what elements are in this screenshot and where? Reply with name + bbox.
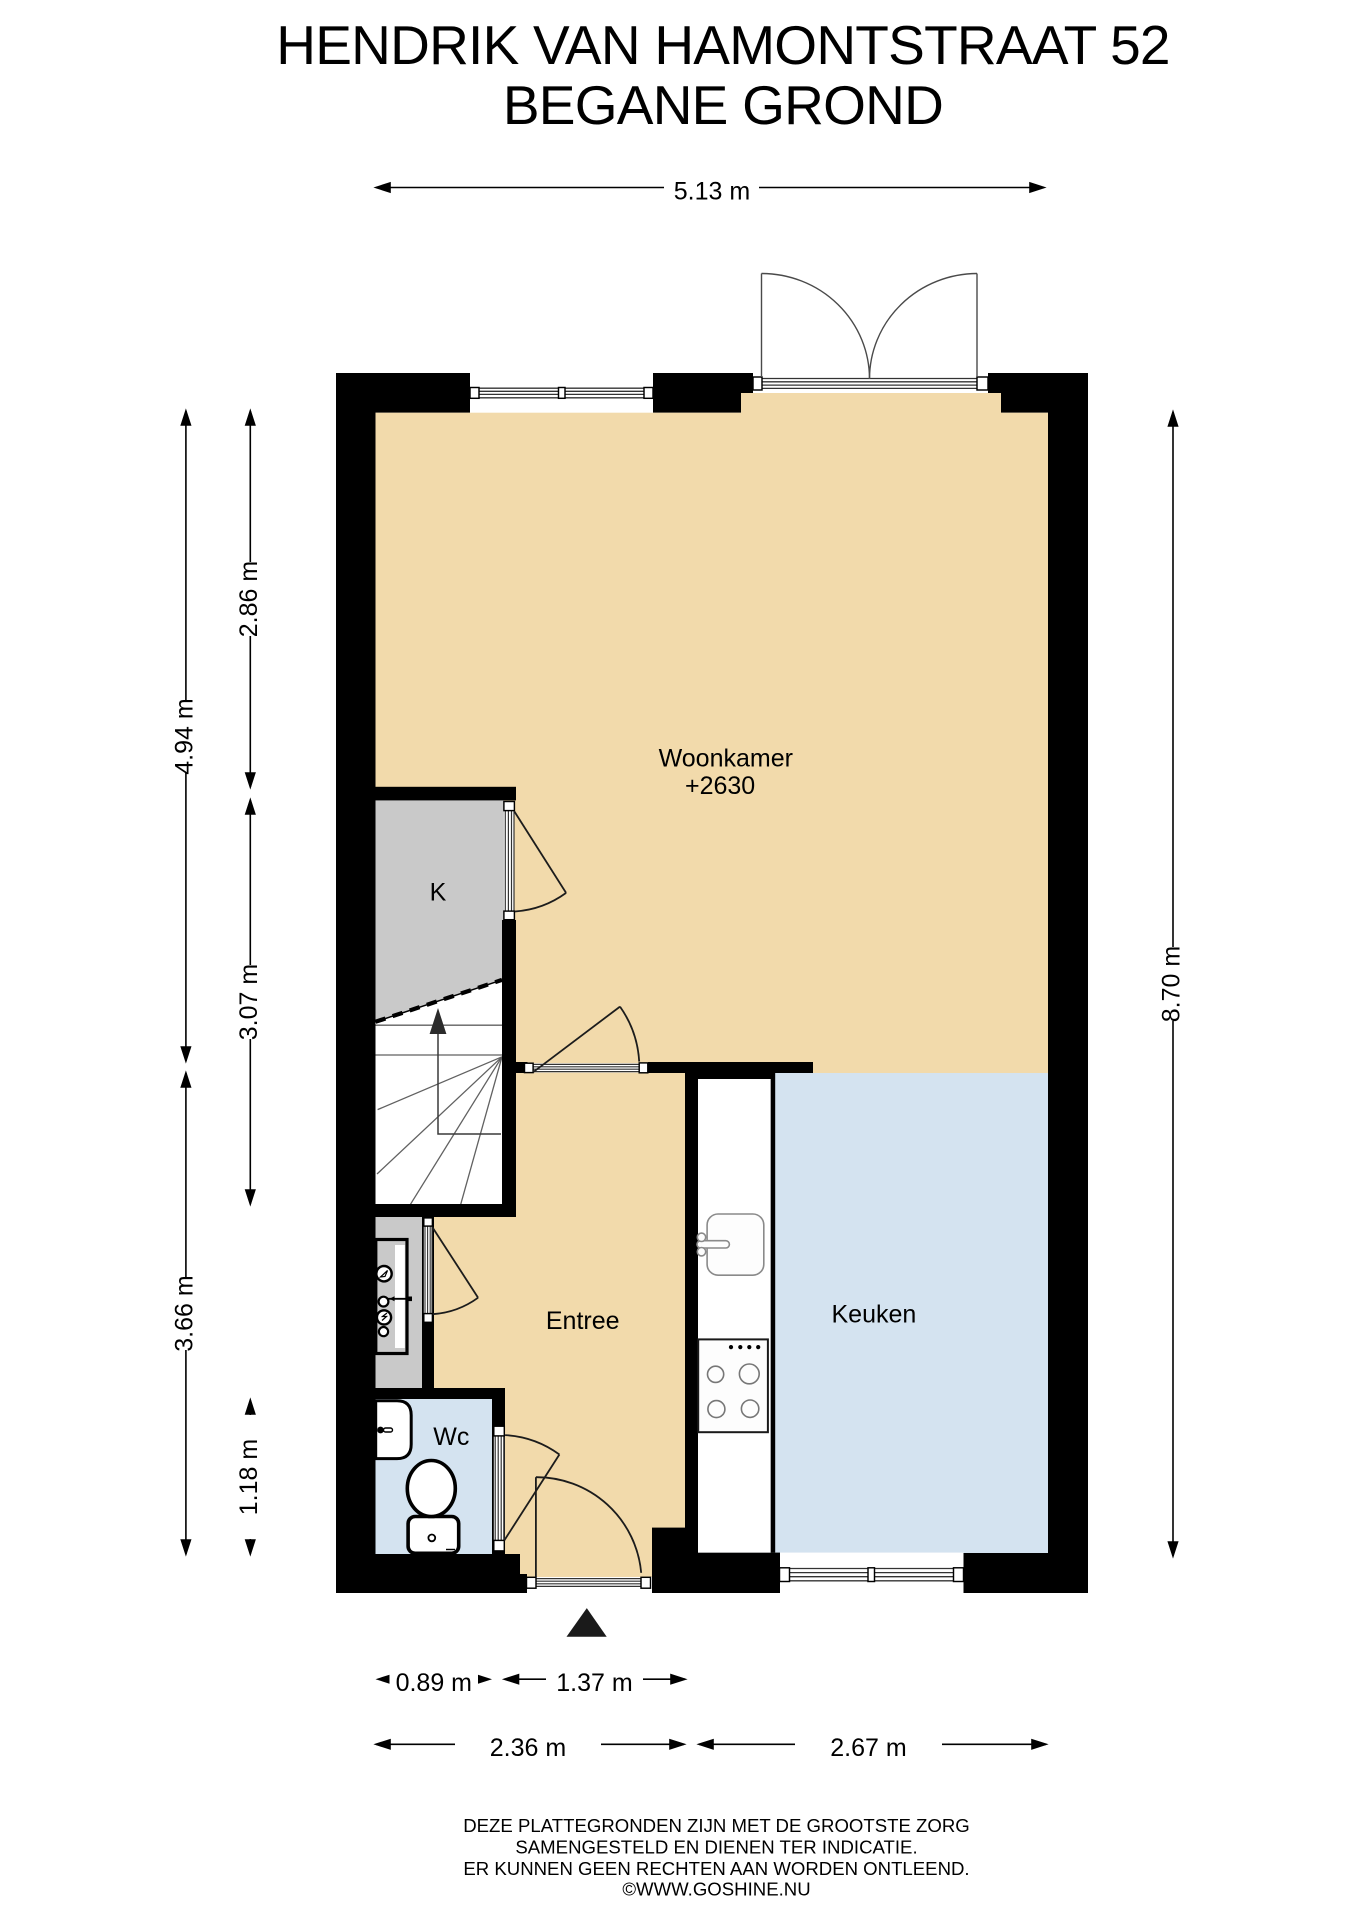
svg-text:0.89 m: 0.89 m xyxy=(396,1669,472,1697)
svg-text:1.18 m: 1.18 m xyxy=(235,1439,263,1515)
svg-text:2.67 m: 2.67 m xyxy=(830,1734,906,1762)
svg-text:Wc: Wc xyxy=(433,1423,469,1451)
svg-text:HENDRIK VAN HAMONTSTRAAT 52: HENDRIK VAN HAMONTSTRAAT 52 xyxy=(276,14,1170,76)
svg-text:©WWW.GOSHINE.NU: ©WWW.GOSHINE.NU xyxy=(622,1879,810,1900)
svg-text:1.37 m: 1.37 m xyxy=(556,1669,632,1697)
svg-text:5.13 m: 5.13 m xyxy=(674,178,750,206)
svg-text:Woonkamer: Woonkamer xyxy=(659,744,793,772)
svg-text:+2630: +2630 xyxy=(685,772,755,800)
svg-text:K: K xyxy=(430,879,447,907)
svg-text:8.70 m: 8.70 m xyxy=(1158,946,1186,1022)
svg-text:BEGANE GROND: BEGANE GROND xyxy=(503,74,943,136)
svg-text:ER KUNNEN GEEN RECHTEN AAN WOR: ER KUNNEN GEEN RECHTEN AAN WORDEN ONTLEE… xyxy=(463,1858,969,1879)
svg-text:3.07 m: 3.07 m xyxy=(235,964,263,1040)
svg-text:2.36 m: 2.36 m xyxy=(490,1734,566,1762)
svg-text:DEZE PLATTEGRONDEN ZIJN MET DE: DEZE PLATTEGRONDEN ZIJN MET DE GROOTSTE … xyxy=(463,1815,970,1836)
svg-text:2.86 m: 2.86 m xyxy=(235,561,263,637)
svg-text:SAMENGESTELD EN DIENEN TER IND: SAMENGESTELD EN DIENEN TER INDICATIE. xyxy=(515,1837,917,1858)
svg-text:4.94 m: 4.94 m xyxy=(171,698,199,774)
svg-text:Keuken: Keuken xyxy=(832,1300,917,1328)
svg-text:Entree: Entree xyxy=(546,1307,620,1335)
svg-text:3.66 m: 3.66 m xyxy=(171,1275,199,1351)
